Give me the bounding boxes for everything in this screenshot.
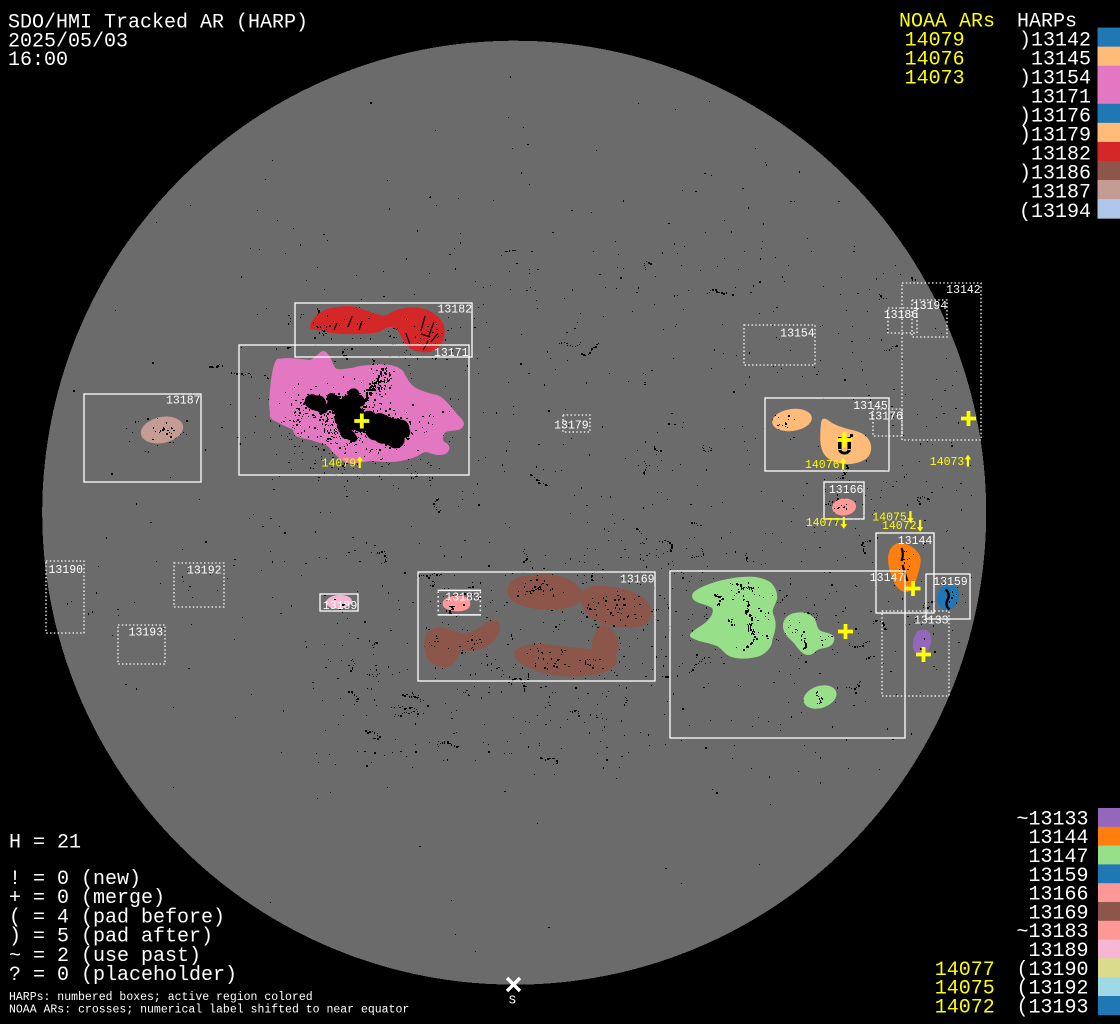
svg-text:): ) [1019,29,1031,52]
svg-text:13193: 13193 [129,627,164,640]
svg-text:? = 0 (placeholder): ? = 0 (placeholder) [9,964,237,987]
svg-text:13169: 13169 [620,574,655,587]
svg-text:): ) [1019,163,1031,186]
svg-text:(: ( [1019,201,1031,224]
svg-text:13194: 13194 [1031,201,1091,224]
svg-text:(: ( [1017,996,1029,1019]
svg-text:): ) [1019,67,1031,90]
svg-text:13187: 13187 [166,395,201,408]
svg-text:13189: 13189 [323,600,358,613]
svg-text:14073: 14073 [930,456,965,469]
svg-text:13154: 13154 [780,328,815,341]
svg-text:14073: 14073 [905,67,965,90]
svg-text:14076: 14076 [805,459,840,472]
svg-text:): ) [1019,125,1031,148]
svg-text:NOAA ARs: crosses; numerical l: NOAA ARs: crosses; numerical label shift… [9,1004,409,1017]
svg-text:HARPs: numbered boxes; active: HARPs: numbered boxes; active region col… [9,991,313,1004]
svg-text:13147: 13147 [870,572,905,585]
svg-text:~: ~ [1017,808,1029,831]
svg-text:13176: 13176 [868,410,903,423]
svg-text:13166: 13166 [829,484,864,497]
svg-text:13182: 13182 [437,304,472,317]
svg-text:13193: 13193 [1029,996,1089,1019]
svg-text:13171: 13171 [434,347,469,360]
svg-text:S: S [509,994,516,1008]
svg-text:13142: 13142 [946,284,981,297]
svg-text:13133: 13133 [914,615,949,628]
svg-text:14072: 14072 [935,996,995,1019]
svg-text:13159: 13159 [933,576,968,589]
svg-text:13183: 13183 [445,592,480,605]
svg-text:13192: 13192 [187,565,222,578]
svg-text:13144: 13144 [898,535,933,548]
svg-text:14079: 14079 [322,458,357,471]
svg-text:14077: 14077 [806,517,841,530]
svg-text:13179: 13179 [554,420,589,433]
svg-text:13190: 13190 [49,564,84,577]
svg-text:~: ~ [1017,921,1029,944]
svg-text:16:00: 16:00 [8,49,68,72]
svg-text:13194: 13194 [913,300,948,313]
svg-text:H = 21: H = 21 [9,832,81,855]
svg-text:14072: 14072 [882,520,917,533]
